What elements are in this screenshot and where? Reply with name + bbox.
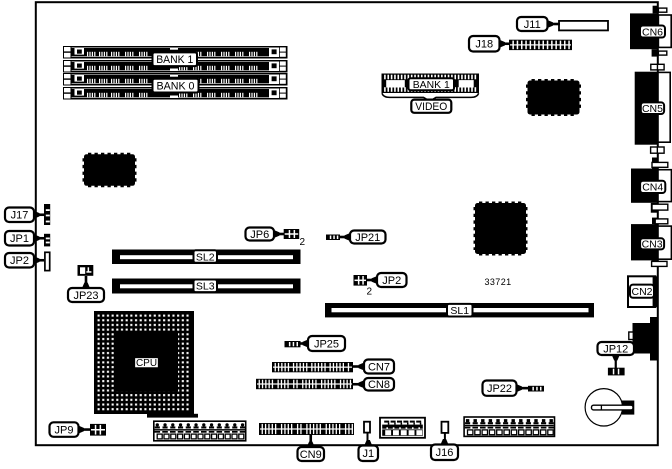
svg-text:JP23: JP23 xyxy=(73,290,98,302)
svg-text:JP12: JP12 xyxy=(603,343,628,355)
svg-text:JP22: JP22 xyxy=(487,383,512,395)
svg-text:J18: J18 xyxy=(475,39,493,51)
svg-text:2: 2 xyxy=(367,287,373,298)
svg-text:JP9: JP9 xyxy=(55,425,74,437)
svg-text:SL1: SL1 xyxy=(450,305,469,317)
svg-text:J1: J1 xyxy=(362,448,374,460)
svg-text:CPU: CPU xyxy=(136,358,157,369)
svg-text:BANK 0: BANK 0 xyxy=(157,81,195,93)
svg-text:VIDEO: VIDEO xyxy=(415,101,447,113)
svg-text:JP1: JP1 xyxy=(10,233,29,245)
svg-text:JP21: JP21 xyxy=(355,232,380,244)
svg-text:BANK 1: BANK 1 xyxy=(413,79,450,91)
svg-text:CN9: CN9 xyxy=(300,449,322,461)
svg-text:J11: J11 xyxy=(524,19,541,31)
svg-text:SL2: SL2 xyxy=(196,251,215,263)
svg-text:CN7: CN7 xyxy=(368,361,390,373)
svg-text:JP25: JP25 xyxy=(314,338,339,350)
svg-text:JP2: JP2 xyxy=(10,255,29,267)
svg-text:BANK 1: BANK 1 xyxy=(156,54,193,66)
svg-text:J16: J16 xyxy=(436,447,454,459)
svg-text:CN3: CN3 xyxy=(642,239,663,251)
svg-text:CN6: CN6 xyxy=(642,26,663,38)
svg-text:SL3: SL3 xyxy=(196,281,215,293)
svg-text:2: 2 xyxy=(300,237,306,248)
svg-text:CN8: CN8 xyxy=(368,379,390,391)
svg-text:JP2: JP2 xyxy=(382,275,401,287)
svg-text:CN4: CN4 xyxy=(642,182,663,194)
svg-text:33721: 33721 xyxy=(485,277,512,287)
svg-text:JP6: JP6 xyxy=(250,229,269,241)
svg-text:J17: J17 xyxy=(11,210,29,222)
svg-text:CN2: CN2 xyxy=(631,286,652,298)
svg-text:CN5: CN5 xyxy=(642,103,663,115)
